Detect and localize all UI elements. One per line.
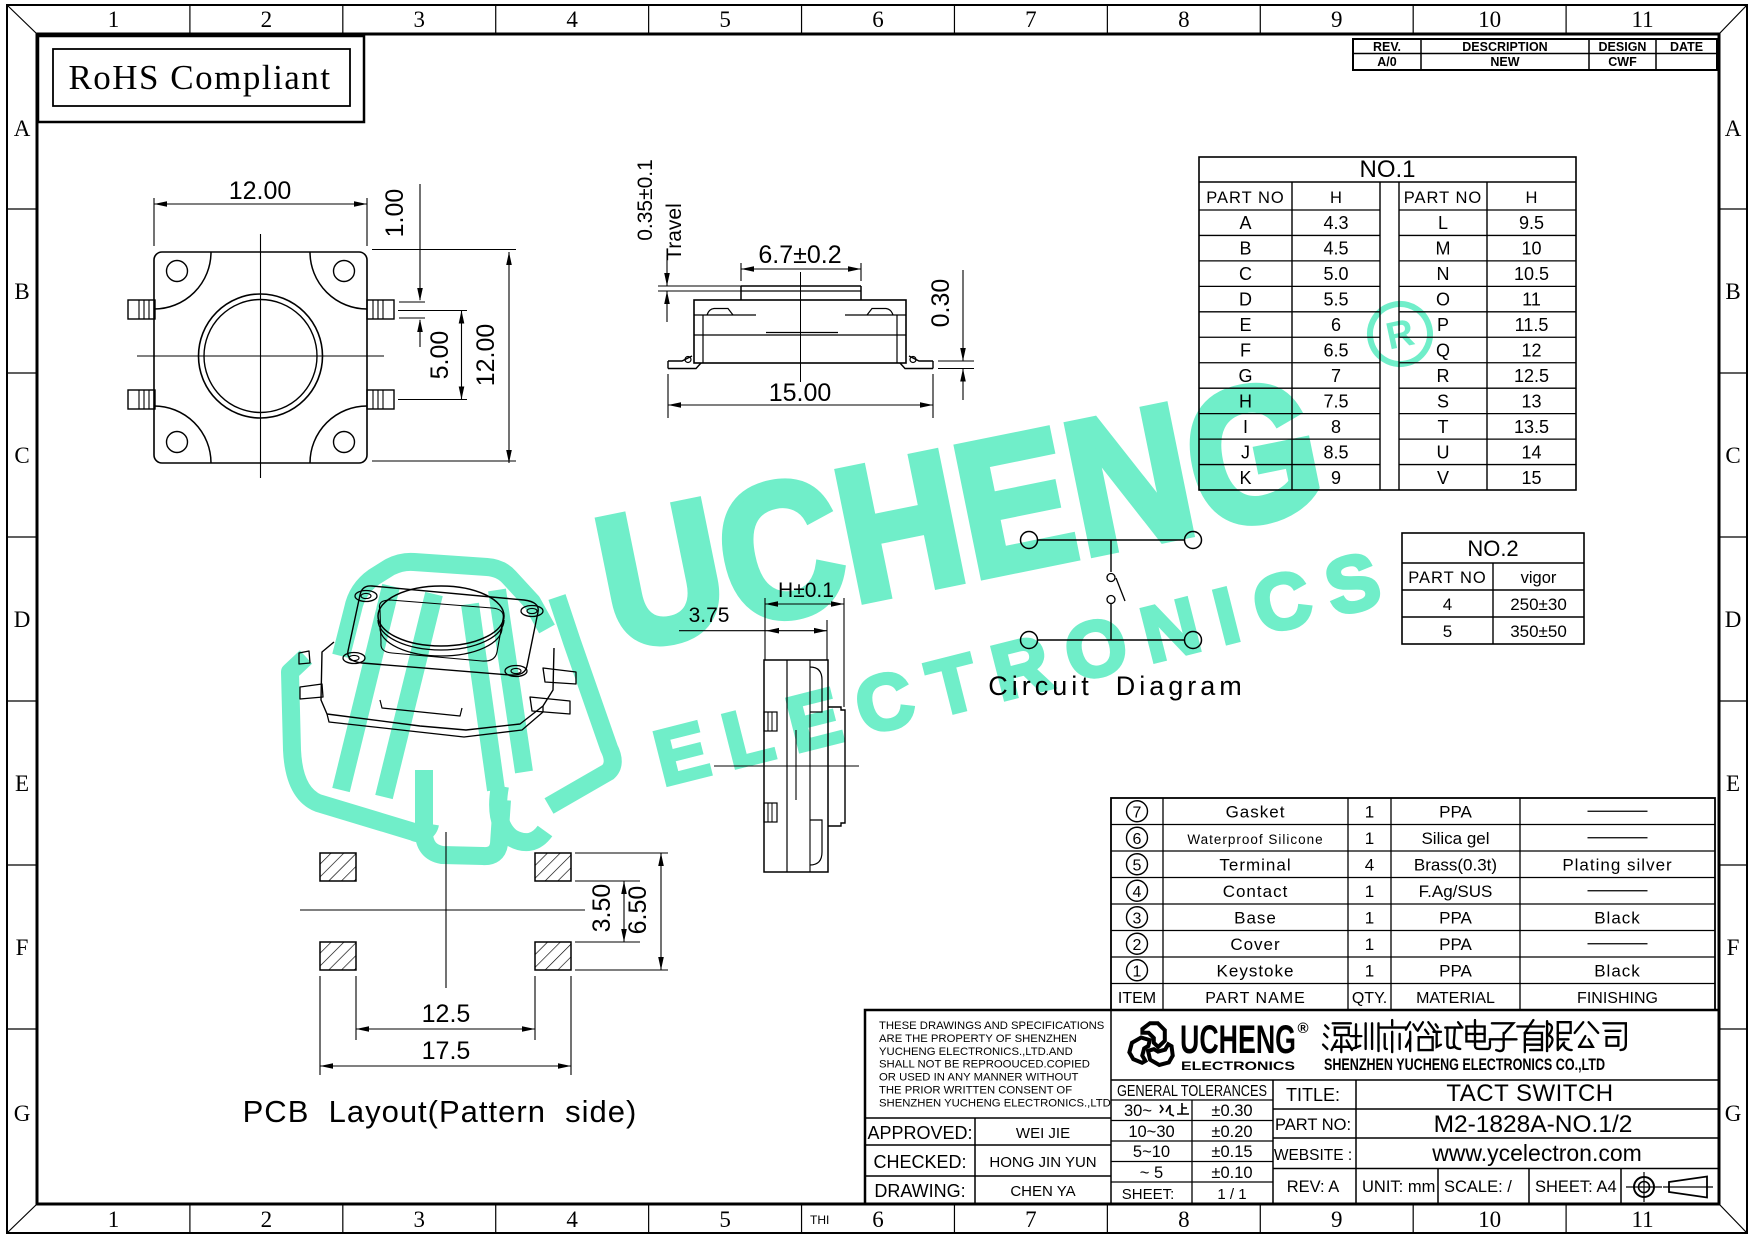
svg-text:F: F <box>1240 341 1251 361</box>
svg-text:SHALL NOT BE REPROOUCED.COPIED: SHALL NOT BE REPROOUCED.COPIED <box>879 1059 1090 1071</box>
svg-text:11.5: 11.5 <box>1515 315 1549 335</box>
svg-text:8.5: 8.5 <box>1323 442 1348 462</box>
svg-text:6: 6 <box>872 7 884 32</box>
svg-text:UNIT: mm: UNIT: mm <box>1362 1178 1435 1196</box>
svg-text:6: 6 <box>1331 315 1341 335</box>
svg-text:11: 11 <box>1631 1207 1653 1232</box>
svg-text:13: 13 <box>1521 391 1541 411</box>
svg-text:C: C <box>14 443 29 468</box>
svg-text:1: 1 <box>1133 963 1142 980</box>
svg-text:I: I <box>1243 417 1248 437</box>
svg-text:K: K <box>1239 468 1251 488</box>
svg-text:HONG JIN YUN: HONG JIN YUN <box>989 1154 1096 1171</box>
svg-text:A: A <box>1239 213 1251 233</box>
svg-text:1: 1 <box>1365 961 1374 980</box>
svg-text:SHEET: A4: SHEET: A4 <box>1535 1178 1617 1196</box>
svg-text:M: M <box>1436 239 1451 259</box>
svg-text:J: J <box>1241 442 1250 462</box>
svg-text:8: 8 <box>1178 1207 1190 1232</box>
svg-text:4: 4 <box>1443 595 1452 614</box>
svg-text:0.35±0.1: 0.35±0.1 <box>634 159 657 241</box>
svg-text:1: 1 <box>1365 935 1374 954</box>
svg-text:Q: Q <box>1436 341 1450 361</box>
svg-text:5: 5 <box>719 7 731 32</box>
svg-text:DATE: DATE <box>1670 40 1703 54</box>
svg-text:9.5: 9.5 <box>1519 213 1544 233</box>
svg-text:REV.: REV. <box>1373 40 1401 54</box>
svg-text:G: G <box>14 1101 31 1126</box>
svg-text:250±30: 250±30 <box>1510 595 1567 614</box>
svg-text:PART NO: PART NO <box>1206 189 1285 207</box>
svg-text:NEW: NEW <box>1490 55 1519 69</box>
svg-text:RoHS Compliant: RoHS Compliant <box>68 58 331 97</box>
svg-text:N: N <box>1437 264 1450 284</box>
svg-text:10~30: 10~30 <box>1128 1123 1174 1141</box>
svg-text:PART NAME: PART NAME <box>1205 990 1306 1007</box>
svg-text:6.5: 6.5 <box>1323 341 1348 361</box>
svg-text:10: 10 <box>1478 7 1501 32</box>
svg-text:PART NO:: PART NO: <box>1275 1116 1351 1134</box>
svg-text:C: C <box>1239 264 1252 284</box>
svg-text:A/0: A/0 <box>1377 55 1397 69</box>
svg-text:PART NO: PART NO <box>1408 569 1487 587</box>
svg-text:Cover: Cover <box>1230 935 1280 954</box>
svg-text:DESCRIPTION: DESCRIPTION <box>1462 40 1547 54</box>
svg-text:7: 7 <box>1331 366 1341 386</box>
svg-text:12.00: 12.00 <box>229 177 292 205</box>
svg-text:TITLE:: TITLE: <box>1286 1085 1340 1105</box>
svg-text:13.5: 13.5 <box>1514 417 1549 437</box>
svg-text:L: L <box>1438 213 1448 233</box>
svg-text:F: F <box>16 935 29 960</box>
svg-text:FINISHING: FINISHING <box>1577 990 1658 1007</box>
svg-text:6: 6 <box>872 1207 884 1232</box>
svg-text:H: H <box>1239 391 1252 411</box>
svg-text:D: D <box>1725 607 1742 632</box>
svg-text:WEI JIE: WEI JIE <box>1016 1125 1070 1142</box>
svg-text:3: 3 <box>1133 910 1142 927</box>
svg-text:8: 8 <box>1331 417 1341 437</box>
svg-text:F: F <box>1727 935 1740 960</box>
svg-text:PPA: PPA <box>1439 935 1472 954</box>
svg-text:PPA: PPA <box>1439 908 1472 927</box>
svg-text:SHEET:: SHEET: <box>1122 1186 1175 1203</box>
svg-text:OR USED IN ANY MANNER WITHOUT: OR USED IN ANY MANNER WITHOUT <box>879 1072 1078 1084</box>
svg-text:S: S <box>1437 391 1449 411</box>
svg-text:Keystoke: Keystoke <box>1217 961 1295 980</box>
svg-text:PPA: PPA <box>1439 961 1472 980</box>
svg-text:1: 1 <box>108 1207 120 1232</box>
svg-text:U: U <box>1437 442 1450 462</box>
svg-text:±0.10: ±0.10 <box>1211 1164 1252 1182</box>
svg-text:±0.20: ±0.20 <box>1211 1123 1252 1141</box>
svg-text:Black: Black <box>1594 961 1641 980</box>
svg-text:E: E <box>1726 771 1740 796</box>
svg-text:3.75: 3.75 <box>689 604 730 627</box>
svg-text:UCHENG: UCHENG <box>1180 1018 1296 1062</box>
svg-text:QTY.: QTY. <box>1352 990 1387 1007</box>
svg-text:Circuit Diagram: Circuit Diagram <box>988 671 1246 701</box>
svg-text:10: 10 <box>1521 239 1541 259</box>
svg-text:F.Ag/SUS: F.Ag/SUS <box>1419 882 1493 901</box>
svg-text:THESE DRAWINGS AND SPECIFICATI: THESE DRAWINGS AND SPECIFICATIONS <box>879 1020 1105 1032</box>
svg-text:0.30: 0.30 <box>927 279 955 328</box>
svg-text:350±50: 350±50 <box>1510 622 1567 641</box>
svg-text:2: 2 <box>1133 937 1142 954</box>
svg-text:TACT SWITCH: TACT SWITCH <box>1446 1080 1613 1107</box>
svg-text:5: 5 <box>1133 857 1142 874</box>
svg-text:4.5: 4.5 <box>1323 239 1348 259</box>
svg-text:1 / 1: 1 / 1 <box>1217 1186 1246 1203</box>
svg-text:E: E <box>15 771 29 796</box>
svg-text:Travel: Travel <box>663 203 686 261</box>
svg-text:D: D <box>14 607 31 632</box>
svg-text:YUCHENG ELECTRONICS.,LTD.AND: YUCHENG ELECTRONICS.,LTD.AND <box>879 1046 1073 1058</box>
svg-text:1.00: 1.00 <box>381 189 409 238</box>
svg-text:PPA: PPA <box>1439 802 1472 821</box>
svg-text:Terminal: Terminal <box>1219 855 1291 874</box>
svg-text:9: 9 <box>1331 468 1341 488</box>
svg-text:PCB Layout(Pattern side): PCB Layout(Pattern side) <box>243 1094 638 1129</box>
svg-text:~ 5: ~ 5 <box>1140 1164 1163 1182</box>
svg-text:7: 7 <box>1025 1207 1037 1232</box>
svg-text:PART NO: PART NO <box>1404 189 1483 207</box>
svg-text:T: T <box>1438 417 1449 437</box>
svg-text:R: R <box>1382 312 1418 359</box>
svg-text:Brass(0.3t): Brass(0.3t) <box>1414 855 1497 874</box>
svg-text:3: 3 <box>414 1207 426 1232</box>
svg-text:CHECKED:: CHECKED: <box>873 1152 966 1172</box>
svg-text:Waterproof Silicone: Waterproof Silicone <box>1187 832 1323 847</box>
svg-text:5~10: 5~10 <box>1133 1143 1170 1161</box>
svg-text:ELECTRONICS: ELECTRONICS <box>1181 1059 1295 1073</box>
svg-text:Black: Black <box>1594 908 1641 927</box>
svg-text:8: 8 <box>1178 7 1190 32</box>
svg-text:SHENZHEN YUCHENG ELECTRONICS.,: SHENZHEN YUCHENG ELECTRONICS.,LTD <box>879 1097 1111 1109</box>
svg-text:1: 1 <box>108 7 120 32</box>
svg-text:A: A <box>14 116 31 141</box>
svg-text:10.5: 10.5 <box>1514 264 1549 284</box>
svg-text:M2-1828A-NO.1/2: M2-1828A-NO.1/2 <box>1434 1111 1633 1138</box>
svg-text:vigor: vigor <box>1521 569 1557 587</box>
svg-text:15.00: 15.00 <box>769 379 832 407</box>
svg-text:6.7±0.2: 6.7±0.2 <box>758 241 841 269</box>
svg-text:MATERIAL: MATERIAL <box>1416 990 1495 1007</box>
svg-text:2: 2 <box>261 1207 273 1232</box>
svg-text:±0.30: ±0.30 <box>1211 1102 1252 1120</box>
svg-text:Plating silver: Plating silver <box>1562 855 1672 874</box>
svg-text:APPROVED:: APPROVED: <box>867 1123 972 1143</box>
svg-text:12: 12 <box>1521 341 1541 361</box>
svg-text:THE PRIOR WRITTEN CONSENT OF: THE PRIOR WRITTEN CONSENT OF <box>879 1085 1072 1097</box>
svg-text:E: E <box>1239 315 1251 335</box>
svg-text:5.0: 5.0 <box>1323 264 1348 284</box>
svg-text:ITEM: ITEM <box>1118 990 1156 1007</box>
svg-text:H±0.1: H±0.1 <box>778 579 834 602</box>
svg-text:4: 4 <box>1365 855 1374 874</box>
svg-text:9: 9 <box>1331 1207 1343 1232</box>
svg-text:R: R <box>1437 366 1450 386</box>
svg-text:12.5: 12.5 <box>1514 366 1549 386</box>
svg-text:Silica gel: Silica gel <box>1421 829 1489 848</box>
svg-text:www.ycelectron.com: www.ycelectron.com <box>1431 1140 1642 1166</box>
svg-text:5: 5 <box>719 1207 731 1232</box>
svg-text:NO.2: NO.2 <box>1467 536 1518 561</box>
svg-text:H: H <box>1330 189 1342 207</box>
svg-text:3: 3 <box>414 7 426 32</box>
svg-text:1: 1 <box>1365 829 1374 848</box>
svg-text:11: 11 <box>1522 290 1541 310</box>
svg-text:3.50: 3.50 <box>588 884 616 933</box>
svg-text:A: A <box>1725 116 1742 141</box>
svg-text:WEBSITE :: WEBSITE : <box>1274 1147 1352 1164</box>
svg-text:5.5: 5.5 <box>1323 290 1348 310</box>
svg-text:SHENZHEN YUCHENG ELECTRONICS C: SHENZHEN YUCHENG ELECTRONICS CO.,LTD <box>1324 1056 1605 1074</box>
svg-text:H: H <box>1526 189 1538 207</box>
svg-text:V: V <box>1437 468 1449 488</box>
svg-text:4: 4 <box>1133 884 1142 901</box>
svg-text:10: 10 <box>1478 1207 1501 1232</box>
svg-text:B: B <box>1239 239 1251 259</box>
svg-text:6: 6 <box>1133 831 1142 848</box>
svg-text:1: 1 <box>1365 908 1374 927</box>
svg-text:®: ® <box>1297 1020 1308 1037</box>
svg-text:B: B <box>14 279 29 304</box>
svg-text:7: 7 <box>1133 804 1142 821</box>
svg-text:4.3: 4.3 <box>1323 213 1348 233</box>
svg-text:7.5: 7.5 <box>1323 391 1348 411</box>
svg-text:DRAWING:: DRAWING: <box>874 1181 965 1201</box>
svg-text:2: 2 <box>261 7 273 32</box>
svg-text:G: G <box>1238 366 1252 386</box>
svg-text:THI: THI <box>810 1213 829 1227</box>
svg-text:11: 11 <box>1631 7 1653 32</box>
svg-text:30~: 30~ <box>1124 1102 1152 1120</box>
svg-text:Base: Base <box>1234 908 1277 927</box>
svg-text:CHEN YA: CHEN YA <box>1010 1183 1075 1200</box>
svg-text:O: O <box>1436 290 1450 310</box>
svg-text:NO.1: NO.1 <box>1359 156 1415 183</box>
svg-text:15: 15 <box>1521 468 1541 488</box>
svg-text:D: D <box>1239 290 1252 310</box>
svg-text:7: 7 <box>1025 7 1037 32</box>
svg-text:9: 9 <box>1331 7 1343 32</box>
svg-text:P: P <box>1437 315 1449 335</box>
svg-text:5.00: 5.00 <box>426 331 454 380</box>
svg-text:C: C <box>1725 443 1740 468</box>
svg-text:4: 4 <box>566 1207 578 1232</box>
svg-text:1: 1 <box>1365 882 1374 901</box>
svg-text:SCALE: /: SCALE: / <box>1444 1178 1512 1196</box>
svg-text:14: 14 <box>1521 442 1541 462</box>
svg-text:Gasket: Gasket <box>1226 802 1286 821</box>
svg-text:CWF: CWF <box>1608 55 1637 69</box>
svg-text:4: 4 <box>566 7 578 32</box>
svg-text:12.00: 12.00 <box>472 324 500 387</box>
svg-text:ARE THE PROPERTY OF SHENZHEN: ARE THE PROPERTY OF SHENZHEN <box>879 1033 1077 1045</box>
svg-text:GENERAL TOLERANCES: GENERAL TOLERANCES <box>1117 1083 1267 1100</box>
svg-text:5: 5 <box>1443 622 1452 641</box>
svg-text:1: 1 <box>1365 802 1374 821</box>
svg-text:12.5: 12.5 <box>422 1000 471 1028</box>
svg-text:DESIGN: DESIGN <box>1599 40 1647 54</box>
svg-text:G: G <box>1725 1101 1742 1126</box>
svg-text:B: B <box>1725 279 1740 304</box>
svg-text:Contact: Contact <box>1223 882 1289 901</box>
svg-text:±0.15: ±0.15 <box>1211 1143 1252 1161</box>
svg-text:17.5: 17.5 <box>422 1037 471 1065</box>
svg-text:6.50: 6.50 <box>624 886 652 935</box>
svg-text:REV: A: REV: A <box>1287 1178 1340 1196</box>
